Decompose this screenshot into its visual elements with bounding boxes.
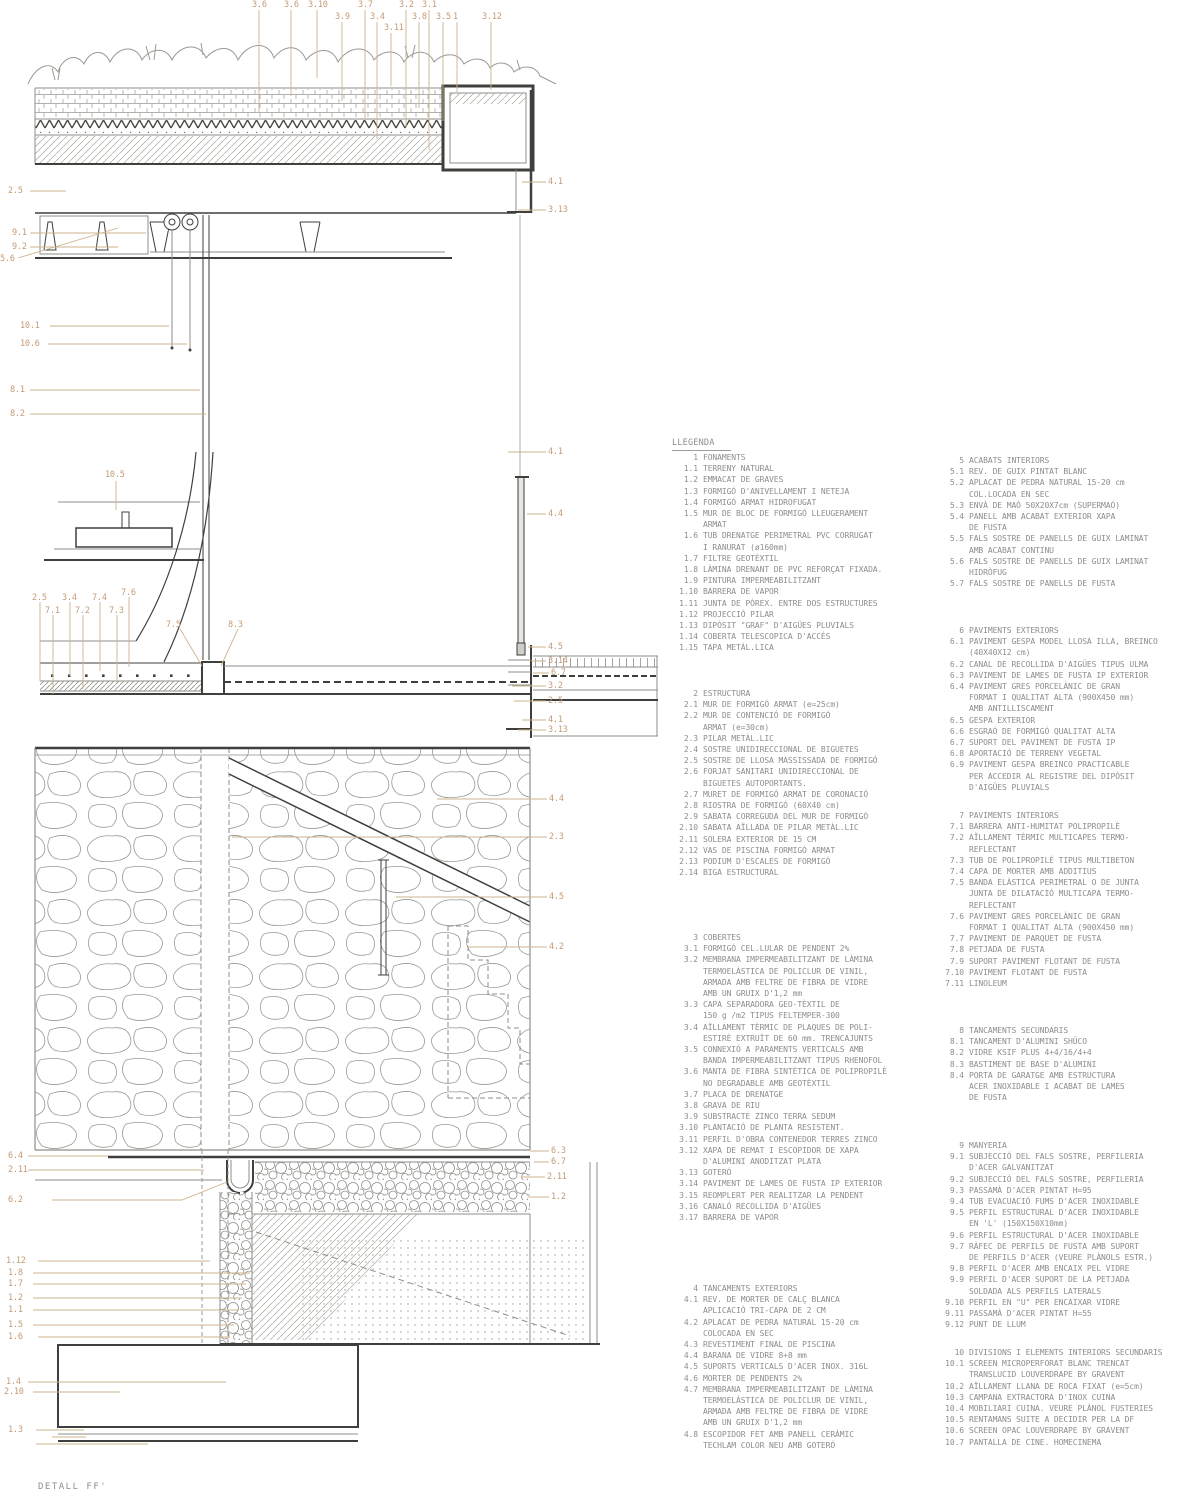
legend-section-manyeria: 9MANYERIA9.1SUBJECCIÓ DEL FALS SOSTRE, P… xyxy=(938,1140,1200,1330)
callout-3.10: 3.10 xyxy=(308,1,328,10)
legend-item: 2.12VAS DE PISCINA FORMIGÓ ARMAT xyxy=(672,845,936,856)
detail-sheet: 3.63.63.103.73.23.13.93.43.83.513.123.11… xyxy=(0,0,1200,1502)
legend-item: 6.8APORTACIÓ DE TERRENY VEGETAL xyxy=(938,748,1200,759)
callout-4.5: 4.5 xyxy=(549,893,564,902)
callout-3.9: 3.9 xyxy=(335,13,350,22)
callout-2.11: 2.11 xyxy=(547,1173,567,1182)
callout-3.8: 3.8 xyxy=(412,13,427,22)
legend-item: 5.5FALS SOSTRE DE PANELLS DE GUIX LAMINA… xyxy=(938,533,1200,555)
detail-title: DETALL FF' xyxy=(38,1482,107,1492)
callout-1.2: 1.2 xyxy=(551,1193,566,1202)
legend-item: 2.10SABATA AÏLLADA DE PILAR METÀL.LIC xyxy=(672,822,936,833)
legend-item: 3.3CAPA SEPARADORA GEO-TÈXTIL DE 150 g /… xyxy=(672,999,936,1021)
legend-section-estructura: 2ESTRUCTURA2.1MUR DE FORMIGÓ ARMAT (e=25… xyxy=(672,688,936,878)
legend-item: 10.6SCREEN OPAC LOUVERDRAPE BY GRAVENT xyxy=(938,1425,1200,1436)
legend-item: 9.2SUBJECCIÓ DEL FALS SOSTRE, PERFILERIA xyxy=(938,1174,1200,1185)
callout-7.5: 7.5 xyxy=(166,621,181,630)
callout-8.2: 8.2 xyxy=(10,410,25,419)
callout-2.3: 2.3 xyxy=(549,833,564,842)
legend-item: 3.17BARRERA DE VAPOR xyxy=(672,1212,936,1223)
callout-3.6: 3.6 xyxy=(252,1,267,10)
legend-item: 2.6FORJAT SANITARI UNIDIRECCIONAL DE BIG… xyxy=(672,766,936,788)
callout-1.1: 1.1 xyxy=(8,1306,23,1315)
legend-item: 3.2MEMBRANA IMPERMEABILITZANT DE LÀMINA … xyxy=(672,954,936,999)
legend-section-acabats-interiors: 5ACABATS INTERIORS5.1REV. DE GUIX PINTAT… xyxy=(938,455,1200,589)
legend-item: 9.4TUB EVACUACIÓ FUMS D'ACER INOXIDABLE xyxy=(938,1196,1200,1207)
legend-item: 10.5RENTAMANS SUITE A DECIDIR PER LA DF xyxy=(938,1414,1200,1425)
legend-item: 3.5CONNEXIÓ A PARAMENTS VERTICALS AMB BA… xyxy=(672,1044,936,1066)
legend-section-heading: 8TANCAMENTS SECUNDARIS xyxy=(938,1025,1200,1036)
legend-item: 7.5BANDA ELÀSTICA PERIMETRAL O DE JUNTA … xyxy=(938,877,1200,911)
callout-1.8: 1.8 xyxy=(8,1269,23,1278)
legend-item: 6.7SUPORT DEL PAVIMENT DE FUSTA IP xyxy=(938,737,1200,748)
legend-item: 10.2AÏLLAMENT LLANA DE ROCA FIXAT (e=5cm… xyxy=(938,1381,1200,1392)
legend-item: 9.3PASSAMÀ D'ACER PINTAT H=95 xyxy=(938,1185,1200,1196)
legend-item: 2.8RIOSTRA DE FORMIGÓ (60X40 cm) xyxy=(672,800,936,811)
legend-item: 9.6PERFIL ESTRUCTURAL D'ACER INOXIDABLE xyxy=(938,1230,1200,1241)
callout-3.4: 3.4 xyxy=(370,13,385,22)
legend-item: 2.9SABATA CORREGUDA DEL MUR DE FORMIGÓ xyxy=(672,811,936,822)
callout-3.6: 3.6 xyxy=(284,1,299,10)
legend-section-paviments-exteriors: 6PAVIMENTS EXTERIORS6.1PAVIMENT GESPA MO… xyxy=(938,625,1200,793)
legend-item: 5.4PANELL AMB ACABAT EXTERIOR XAPA DE FU… xyxy=(938,511,1200,533)
legend-item: 9.8PERFIL D'ACER AMB ENCAIX PEL VIDRE xyxy=(938,1263,1200,1274)
legend-item: 9.9PERFIL D'ACER SUPORT DE LA PETJADA SO… xyxy=(938,1274,1200,1296)
legend-item: 8.1TANCAMENT D'ALUMINI SHÜCO xyxy=(938,1036,1200,1047)
legend-item: 6.5GESPA EXTERIOR xyxy=(938,715,1200,726)
legend-item: 10.4MOBILIARI CUINA. VEURE PLÀNOL FUSTER… xyxy=(938,1403,1200,1414)
legend-item: 5.6FALS SOSTRE DE PANELLS DE GUIX LAMINA… xyxy=(938,556,1200,578)
callout-7.2: 7.2 xyxy=(75,607,90,616)
legend-item: 1.3FORMIGÓ D'ANIVELLAMENT I NETEJA xyxy=(672,486,936,497)
legend-section-heading: 2ESTRUCTURA xyxy=(672,688,936,699)
callout-1.3: 1.3 xyxy=(8,1426,23,1435)
legend-section-heading: 3COBERTES xyxy=(672,932,936,943)
callout-10.5: 10.5 xyxy=(105,471,125,480)
legend-item: 4.6MORTER DE PENDENTS 2% xyxy=(672,1373,936,1384)
legend-item: 1.6TUB DRENATGE PERIMETRAL PVC CORRUGAT … xyxy=(672,530,936,552)
callout-3.12: 3.12 xyxy=(482,13,502,22)
legend-item: 3.13GOTERÓ xyxy=(672,1167,936,1178)
legend-item: 1.7FILTRE GEOTÈXTIL xyxy=(672,553,936,564)
legend-item: 8.2VIDRE KSIF PLUS 4+4/16/4+4 xyxy=(938,1047,1200,1058)
callout-3.13: 3.13 xyxy=(548,726,568,735)
callout-4.2: 4.2 xyxy=(549,943,564,952)
callout-8.3: 8.3 xyxy=(228,621,243,630)
callout-3.2: 3.2 xyxy=(399,1,414,10)
legend-item: 8.4PORTA DE GARATGE AMB ESTRUCTURA ACER … xyxy=(938,1070,1200,1104)
callout-1.7: 1.7 xyxy=(8,1280,23,1289)
legend-item: 4.2APLACAT DE PEDRA NATURAL 15-20 cm COL… xyxy=(672,1317,936,1339)
legend-item: 9.12PUNT DE LLUM xyxy=(938,1319,1200,1330)
legend-item: 1.4FORMIGÓ ARMAT HIDROFUGAT xyxy=(672,497,936,508)
legend-item: 7.1BARRERA ANTI-HUMITAT POLIPROPILÈ xyxy=(938,821,1200,832)
legend-item: 2.5SOSTRE DE LLOSA MASSISSADA DE FORMIGÓ xyxy=(672,755,936,766)
callout-3.2: 3.2 xyxy=(548,682,563,691)
callout-3.5: 3.5 xyxy=(436,13,451,22)
legend-section-cobertes: 3COBERTES3.1FORMIGÓ CEL.LULAR DE PENDENT… xyxy=(672,932,936,1223)
callout-2.5: 2.5 xyxy=(32,594,47,603)
legend-item: 6.1PAVIMENT GESPA MODEL LLOSA ILLA, BREI… xyxy=(938,636,1200,658)
legend-item: 1.15TAPA METÀL.LICA xyxy=(672,642,936,653)
legend-item: 4.7MEMBRANA IMPERMEABILITZANT DE LÀMINA … xyxy=(672,1384,936,1429)
callout-4.1: 4.1 xyxy=(548,716,563,725)
legend-item: 4.8ESCOPIDOR FET AMB PANELL CERÀMIC TECH… xyxy=(672,1429,936,1451)
legend-item: 7.3TUB DE POLIPROPILÈ TIPUS MULTIBETON xyxy=(938,855,1200,866)
callout-5.6: 5.6 xyxy=(0,255,15,264)
legend-section-divisions: 10DIVISIONS I ELEMENTS INTERIORS SECUNDA… xyxy=(938,1347,1200,1448)
callout-9.1: 9.1 xyxy=(12,229,27,238)
callout-3.7: 3.7 xyxy=(358,1,373,10)
callout-7.6: 7.6 xyxy=(121,589,136,598)
callout-2.10: 2.10 xyxy=(4,1388,24,1397)
callout-labels: 3.63.63.103.73.23.13.93.43.83.513.123.11… xyxy=(0,0,660,1502)
callout-1.4: 1.4 xyxy=(6,1378,21,1387)
legend-item: 7.8PETJADA DE FUSTA xyxy=(938,944,1200,955)
callout-2.11: 2.11 xyxy=(8,1166,28,1175)
callout-4.1: 4.1 xyxy=(548,178,563,187)
callout-1.5: 1.5 xyxy=(8,1321,23,1330)
legend-item: 3.15REOMPLERT PER REALITZAR LA PENDENT xyxy=(672,1190,936,1201)
legend-item: 3.14PAVIMENT DE LAMES DE FUSTA IP EXTERI… xyxy=(672,1178,936,1189)
legend-item: 2.1MUR DE FORMIGÓ ARMAT (e=25cm) xyxy=(672,699,936,710)
legend-item: 6.9PAVIMENT GESPA BREINCO PRACTICABLE PE… xyxy=(938,759,1200,793)
legend-item: 9.10PERFIL EN "U" PER ENCAIXAR VIDRE xyxy=(938,1297,1200,1308)
legend-item: 3.7PLACA DE DRENATGE xyxy=(672,1089,936,1100)
legend-item: 10.1SCREEN MICROPERFORAT BLANC TRENCAT T… xyxy=(938,1358,1200,1380)
legend-item: 6.3PAVIMENT DE LAMES DE FUSTA IP EXTERIO… xyxy=(938,670,1200,681)
legend-item: 7.7PAVIMENT DE PARQUET DE FUSTA xyxy=(938,933,1200,944)
callout-2.5: 2.5 xyxy=(548,697,563,706)
legend-item: 9.1SUBJECCIÓ DEL FALS SOSTRE, PERFILERIA… xyxy=(938,1151,1200,1173)
legend-section-tancaments-exteriors: 4TANCAMENTS EXTERIORS4.1REV. DE MORTER D… xyxy=(672,1283,936,1451)
legend-item: 5.7FALS SOSTRE DE PANELLS DE FUSTA xyxy=(938,578,1200,589)
legend-section-heading: 4TANCAMENTS EXTERIORS xyxy=(672,1283,936,1294)
legend-item: 5.3ENVÀ DE MAÓ 50X20X7cm (SUPERMAÓ) xyxy=(938,500,1200,511)
legend-section-tancaments-secundaris: 8TANCAMENTS SECUNDARIS8.1TANCAMENT D'ALU… xyxy=(938,1025,1200,1103)
legend-item: 2.11SOLERA EXTERIOR DE 15 CM xyxy=(672,834,936,845)
callout-4.1: 4.1 xyxy=(548,448,563,457)
legend-item: 9.7RÀFEC DE PERFILS DE FUSTA AMB SUPORT … xyxy=(938,1241,1200,1263)
callout-8.1: 8.1 xyxy=(10,386,25,395)
legend-item: 1.14COBERTA TELESCOPICA D'ACCÉS xyxy=(672,631,936,642)
callout-10.6: 10.6 xyxy=(20,340,40,349)
callout-6.3: 6.3 xyxy=(551,1147,566,1156)
legend-item: 1.1TERRENY NATURAL xyxy=(672,463,936,474)
callout-1.6: 1.6 xyxy=(8,1333,23,1342)
legend-item: 3.10PLANTACIÓ DE PLANTA RESISTENT. xyxy=(672,1122,936,1133)
callout-1: 1 xyxy=(453,13,458,22)
legend-item: 2.7MURET DE FORMIGÓ ARMAT DE CORONACIÓ xyxy=(672,789,936,800)
legend-section-fonaments: 1FONAMENTS1.1TERRENY NATURAL1.2EMMACAT D… xyxy=(672,452,936,654)
legend-item: 1.8LÀMINA DRENANT DE PVC REFORÇAT FIXADA… xyxy=(672,564,936,575)
callout-6.7: 6.7 xyxy=(551,669,566,678)
legend-item: 1.12PROJECCIÓ PILAR xyxy=(672,609,936,620)
legend-item: 1.9PINTURA IMPERMEABILITZANT xyxy=(672,575,936,586)
callout-4.4: 4.4 xyxy=(549,795,564,804)
legend-item: 3.8GRAVA DE RIU xyxy=(672,1100,936,1111)
callout-7.3: 7.3 xyxy=(109,607,124,616)
legend-item: 3.6MANTA DE FIBRA SINTÈTICA DE POLIPROPI… xyxy=(672,1066,936,1088)
legend-item: 7.6PAVIMENT GRES PORCELÀNIC DE GRAN FORM… xyxy=(938,911,1200,933)
legend-item: 2.14BIGA ESTRUCTURAL xyxy=(672,867,936,878)
legend-item: 7.11LINOLEUM xyxy=(938,978,1200,989)
legend-item: 2.13PODIUM D'ESCALES DE FORMIGÓ xyxy=(672,856,936,867)
callout-6.7: 6.7 xyxy=(551,1158,566,1167)
callout-1.2: 1.2 xyxy=(8,1294,23,1303)
legend-section-paviments-interiors: 7PAVIMENTS INTERIORS7.1BARRERA ANTI-HUMI… xyxy=(938,810,1200,989)
callout-6.2: 6.2 xyxy=(8,1196,23,1205)
legend-item: 3.1FORMIGÓ CEL.LULAR DE PENDENT 2% xyxy=(672,943,936,954)
legend-item: 7.2AÏLLAMENT TÈRMIC MULTICAPES TERMO- RE… xyxy=(938,832,1200,854)
legend-item: 2.2MUR DE CONTENCIÓ DE FORMIGÓ ARMAT (e=… xyxy=(672,710,936,732)
legend-item: 5.2APLACAT DE PEDRA NATURAL 15-20 cm COL… xyxy=(938,477,1200,499)
legend-section-heading: 1FONAMENTS xyxy=(672,452,936,463)
callout-3.4: 3.4 xyxy=(62,594,77,603)
legend-item: 4.4BARANA DE VIDRE 8+8 mm xyxy=(672,1350,936,1361)
legend-item: 9.11PASSAMÀ D'ACER PINTAT H=55 xyxy=(938,1308,1200,1319)
callout-2.5: 2.5 xyxy=(8,187,23,196)
legend-item: 6.2CANAL DE RECOLLIDA D'AIGÜES TIPUS ULM… xyxy=(938,659,1200,670)
callout-4.4: 4.4 xyxy=(548,510,563,519)
legend-item: 1.13DIPÒSIT "GRAF" D'AIGÜES PLUVIALS xyxy=(672,620,936,631)
legend-section-heading: 6PAVIMENTS EXTERIORS xyxy=(938,625,1200,636)
legend-item: 3.9SUBSTRACTE ZINCO TERRA SEDUM xyxy=(672,1111,936,1122)
legend-section-heading: 5ACABATS INTERIORS xyxy=(938,455,1200,466)
legend-item: 1.2EMMACAT DE GRAVES xyxy=(672,474,936,485)
callout-7.4: 7.4 xyxy=(92,594,107,603)
legend-item: 10.7PANTALLA DE CINE. HOMECINEMA xyxy=(938,1437,1200,1448)
legend-section-heading: 9MANYERIA xyxy=(938,1140,1200,1151)
legend-item: 8.3BASTIMENT DE BASE D'ALUMINI xyxy=(938,1059,1200,1070)
callout-6.4: 6.4 xyxy=(8,1152,23,1161)
callout-3.14: 3.14 xyxy=(548,657,568,666)
legend-item: 6.4PAVIMENT GRES PORCELÀNIC DE GRAN FORM… xyxy=(938,681,1200,715)
legend-item: 6.6ESGRAÓ DE FORMIGÓ QUALITAT ALTA xyxy=(938,726,1200,737)
callout-3.1: 3.1 xyxy=(422,1,437,10)
callout-7.1: 7.1 xyxy=(45,607,60,616)
legend-item: 1.10BARRERA DE VAPOR xyxy=(672,586,936,597)
legend-item: 3.16CANALÓ RECOLLIDA D'AIGÜES xyxy=(672,1201,936,1212)
legend-item: 3.4AÏLLAMENT TÈRMIC DE PLAQUES DE POLI- … xyxy=(672,1022,936,1044)
legend-item: 1.5MUR DE BLOC DE FORMIGÓ LLEUGERAMENT A… xyxy=(672,508,936,530)
legend-item: 4.3REVESTIMENT FINAL DE PISCINA xyxy=(672,1339,936,1350)
legend-item: 1.11JUNTA DE PÒREX. ENTRE DOS ESTRUCTURE… xyxy=(672,598,936,609)
legend-section-heading: 10DIVISIONS I ELEMENTS INTERIORS SECUNDA… xyxy=(938,1347,1200,1358)
legend-item: 4.1REV. DE MORTER DE CALÇ BLANCA APLICAC… xyxy=(672,1294,936,1316)
callout-1.12: 1.12 xyxy=(6,1257,26,1266)
legend-item: 10.3CAMPANA EXTRACTORA D'INOX CUINA xyxy=(938,1392,1200,1403)
legend-section-heading: 7PAVIMENTS INTERIORS xyxy=(938,810,1200,821)
legend-title: LLEGENDA xyxy=(672,438,731,451)
callout-10.1: 10.1 xyxy=(20,322,40,331)
legend-item: 7.9SUPORT PAVIMENT FLOTANT DE FUSTA xyxy=(938,956,1200,967)
legend-item: 4.5SUPORTS VERTICALS D'ACER INOX. 316L xyxy=(672,1361,936,1372)
callout-4.5: 4.5 xyxy=(548,643,563,652)
callout-3.11: 3.11 xyxy=(384,24,404,33)
legend-item: 9.5PERFIL ESTRUCTURAL D'ACER INOXIDABLE … xyxy=(938,1207,1200,1229)
legend-item: 7.10PAVIMENT FLOTANT DE FUSTA xyxy=(938,967,1200,978)
callout-3.13: 3.13 xyxy=(548,206,568,215)
legend-item: 3.12XAPA DE REMAT I ESCOPIDOR DE XAPA D'… xyxy=(672,1145,936,1167)
legend-item: 5.1REV. DE GUIX PINTAT BLANC xyxy=(938,466,1200,477)
legend-item: 2.3PILAR METÀL.LIC xyxy=(672,733,936,744)
legend-item: 7.4CAPA DE MORTER AMB ADDITIUS xyxy=(938,866,1200,877)
legend-item: 2.4SOSTRE UNIDIRECCIONAL DE BIGUETES xyxy=(672,744,936,755)
callout-9.2: 9.2 xyxy=(12,243,27,252)
legend-item: 3.11PERFIL D'OBRA CONTENEDOR TERRES ZINC… xyxy=(672,1134,936,1145)
